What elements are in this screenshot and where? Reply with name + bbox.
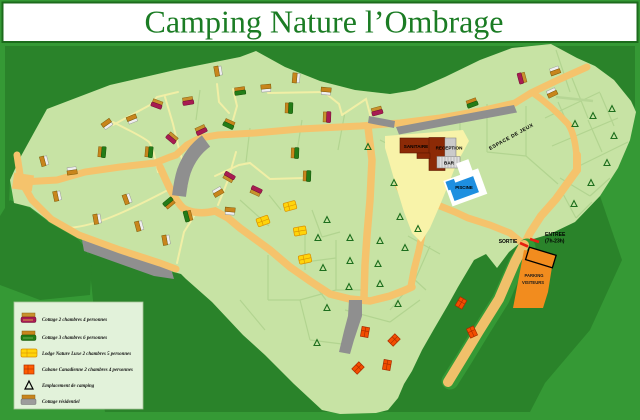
svg-text:Cabane Canadienne 2 chambres 4: Cabane Canadienne 2 chambres 4 personnes (42, 368, 133, 373)
svg-text:Cottage résidentiel: Cottage résidentiel (42, 400, 80, 405)
svg-text:SANITAIRE: SANITAIRE (404, 144, 428, 149)
svg-text:Emplacement de camping: Emplacement de camping (41, 384, 95, 389)
svg-text:Cottage 2 chambres 4 personnes: Cottage 2 chambres 4 personnes (42, 318, 107, 323)
svg-text:(7h-23h): (7h-23h) (545, 239, 565, 245)
svg-text:Lodge Nature Luxe 2 chambres 5: Lodge Nature Luxe 2 chambres 5 personnes (41, 352, 131, 357)
svg-text:ENTREE: ENTREE (545, 232, 566, 238)
svg-text:Cottage 3 chambres 6 personnes: Cottage 3 chambres 6 personnes (42, 336, 107, 341)
svg-text:PARKING: PARKING (525, 273, 544, 278)
svg-text:Camping Nature l’Ombrage: Camping Nature l’Ombrage (145, 4, 504, 40)
svg-text:VISITEURS: VISITEURS (522, 280, 544, 285)
svg-text:PISCINE: PISCINE (455, 185, 473, 190)
svg-text:RECEPTION: RECEPTION (436, 146, 463, 151)
svg-text:BAR: BAR (444, 161, 455, 166)
svg-text:SORTIE: SORTIE (499, 239, 518, 245)
